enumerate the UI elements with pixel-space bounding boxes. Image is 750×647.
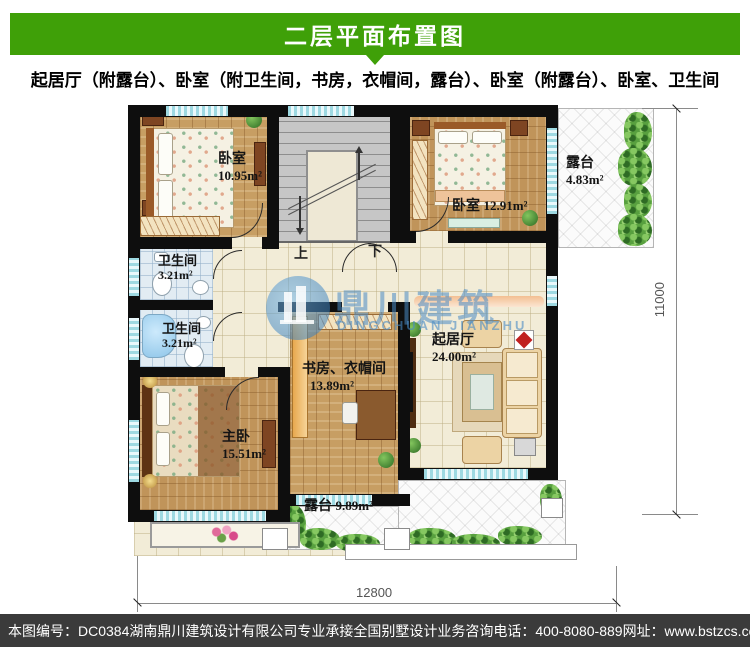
room-label-bedroom2: 卧室 12.91m²	[452, 198, 527, 215]
room-label-bedroom1: 卧室 10.95m²	[218, 152, 262, 185]
nightstand	[510, 120, 528, 136]
dim-height-value: 11000	[652, 282, 667, 317]
window-icon	[288, 105, 354, 117]
desk-chair	[342, 402, 358, 424]
wall	[128, 237, 232, 249]
footer-bar: 本图编号：DC0384 湖南鼎川建筑设计有限公司专业承接全国别墅设计业务 咨询电…	[0, 614, 750, 647]
plant-icon	[378, 452, 394, 468]
sofa-cushion	[506, 408, 538, 434]
footer-serial: 本图编号：DC0384	[8, 621, 129, 641]
stairs-up-label: 上	[294, 243, 308, 263]
greenery	[624, 184, 652, 218]
stair-arrow-shaft	[299, 196, 301, 230]
greenery	[624, 112, 652, 152]
study-name: 书房、衣帽间	[302, 362, 386, 377]
room-summary-line: 起居厅（附露台）、卧室（附卫生间，书房，衣帽间，露台）、卧室（附露台）、卧室、卫…	[0, 66, 750, 91]
wardrobe	[140, 216, 220, 236]
wall	[266, 510, 290, 522]
bath2-area: 3.21m²	[162, 336, 197, 350]
bed-headboard	[142, 385, 152, 477]
wall	[267, 105, 279, 249]
bedroom2-name: 卧室	[452, 199, 480, 214]
sink-icon	[192, 280, 209, 295]
stair-arrow-head	[296, 228, 304, 235]
bath1-name: 卫生间	[158, 253, 197, 268]
terrace-right-area: 4.83m²	[566, 172, 603, 187]
window-seat	[448, 218, 500, 228]
watermark-en: DINGCHUAN JIANZHU	[337, 318, 527, 333]
watermark-logo-icon	[266, 276, 330, 340]
pillar	[541, 498, 563, 518]
terrace-bottom-name: 露台	[304, 499, 332, 514]
dim-line-horizontal	[137, 603, 617, 604]
room-label-master: 主卧 15.51m²	[222, 430, 266, 463]
living-area: 24.00m²	[432, 349, 476, 364]
room-label-bath1: 卫生间 3.21m²	[158, 254, 197, 282]
greenery	[618, 214, 652, 246]
stair-arrow2-shaft	[358, 150, 360, 180]
terrace-right-name: 露台	[566, 156, 594, 171]
pillow	[472, 131, 502, 144]
bed-headboard	[434, 122, 506, 129]
wall	[128, 367, 225, 377]
greenery	[618, 148, 652, 186]
pillow	[156, 432, 170, 466]
desk	[356, 390, 396, 440]
bedroom1-name: 卧室	[218, 152, 246, 167]
dim-cap-bottom	[642, 514, 698, 515]
bath2-name: 卫生间	[162, 321, 201, 336]
dim-line-vertical	[676, 109, 677, 515]
room-label-living: 起居厅 24.00m²	[432, 333, 476, 366]
window-icon	[154, 510, 266, 522]
pillow	[156, 392, 170, 426]
armchair	[462, 436, 502, 464]
bedroom1-area: 10.95m²	[218, 168, 262, 183]
wall	[390, 105, 410, 243]
table-glass	[470, 374, 494, 410]
wall	[128, 510, 154, 522]
room-label-terrace-right: 露台 4.83m²	[566, 156, 603, 189]
window-icon	[546, 128, 558, 214]
lamp	[143, 474, 157, 488]
greenery	[498, 526, 542, 546]
media-box	[514, 438, 536, 456]
wall	[128, 300, 213, 310]
window-icon	[128, 420, 140, 482]
master-name: 主卧	[222, 430, 250, 445]
window-icon	[166, 105, 228, 117]
dim-cap-top	[642, 108, 698, 109]
floor-plan-page: 二层平面布置图 起居厅（附露台）、卧室（附卫生间，书房，衣帽间，露台）、卧室（附…	[0, 0, 750, 647]
bath1-area: 3.21m²	[158, 268, 193, 282]
window-icon	[546, 276, 558, 306]
stairs-down-label: 下	[368, 241, 382, 261]
pillow	[158, 133, 173, 175]
pillow	[438, 131, 468, 144]
pillar	[384, 528, 410, 550]
stair-arrow2-head	[355, 146, 363, 153]
terrace-bottom-area: 9.89m²	[336, 498, 373, 513]
title-pointer	[366, 55, 384, 65]
living-name: 起居厅	[432, 333, 474, 348]
window-icon	[128, 318, 140, 360]
footer-website: 网址：www.bstzcs.com	[623, 621, 750, 641]
dim-width-value: 12800	[356, 585, 392, 600]
bed-headboard	[146, 128, 154, 228]
window-icon	[424, 468, 528, 480]
greenery	[300, 528, 340, 550]
flower-box-icon	[208, 524, 242, 544]
terrace-railing	[345, 544, 577, 560]
room-label-bath2: 卫生间 3.21m²	[162, 322, 201, 350]
bedroom2-area: 12.91m²	[484, 198, 528, 213]
study-area: 13.89m²	[310, 378, 354, 393]
footer-phone: 咨询电话：400-8080-889	[465, 621, 622, 641]
footer-company: 湖南鼎川建筑设计有限公司专业承接全国别墅设计业务	[129, 621, 465, 641]
master-area: 15.51m²	[222, 446, 266, 461]
nightstand	[412, 120, 430, 136]
dim-ext-right	[616, 566, 617, 612]
page-title: 二层平面布置图	[284, 17, 466, 51]
pillar	[262, 528, 288, 550]
sofa-cushion	[506, 380, 538, 406]
wall	[448, 231, 558, 243]
room-label-study: 书房、衣帽间 13.89m²	[302, 362, 386, 395]
room-label-terrace-bottom: 露台 9.89m²	[304, 498, 373, 515]
wall	[410, 231, 416, 243]
title-bar: 二层平面布置图	[10, 13, 740, 55]
window-icon	[128, 258, 140, 296]
sofa-cushion	[506, 352, 538, 378]
wall	[262, 237, 279, 249]
